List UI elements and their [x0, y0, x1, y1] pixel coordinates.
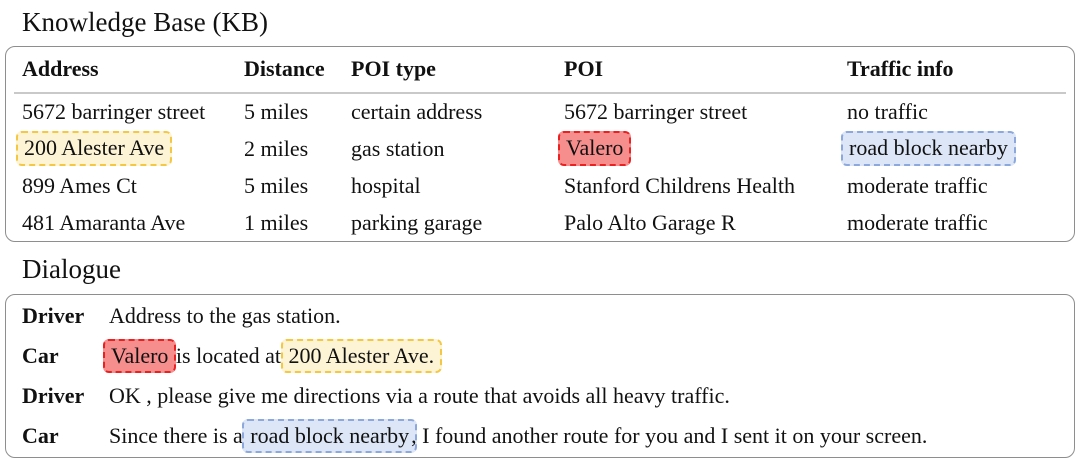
dialogue-section-title: Dialogue — [22, 252, 1080, 286]
dialogue-container: Driver Address to the gas station. Car V… — [5, 294, 1075, 458]
kb-col-header-distance: Distance — [236, 47, 343, 93]
dialogue-turn-3: Driver OK , please give me directions vi… — [6, 376, 1074, 416]
kb-row-1: 5672 barringer street 5 miles certain ad… — [14, 93, 1066, 130]
utterance: Valero is located at 200 Alester Ave. — [109, 339, 436, 373]
kb-row-4: 481 Amaranta Ave 1 miles parking garage … — [14, 204, 1066, 241]
kb-cell-traffic-highlight-blue: road block nearby — [841, 131, 1016, 165]
kb-col-header-poi: POI — [556, 47, 839, 93]
figure-page: Knowledge Base (KB) Address Distance POI… — [0, 0, 1080, 458]
utterance-segment: OK , please give me directions via a rou… — [109, 383, 730, 408]
dialogue-turn-4: Car Since there is a road block nearby, … — [6, 416, 1074, 456]
kb-cell-poi-highlight-red: Valero — [558, 131, 631, 165]
utterance-segment-highlight-red: Valero — [103, 339, 176, 373]
speaker-label: Driver — [22, 303, 109, 329]
kb-section-title: Knowledge Base (KB) — [22, 5, 1080, 39]
kb-cell-poi: 5672 barringer street — [564, 99, 747, 124]
utterance: Address to the gas station. — [109, 303, 341, 329]
utterance-segment: is located at — [170, 343, 286, 368]
kb-col-header-poi-type: POI type — [343, 47, 556, 93]
kb-header-row: Address Distance POI type POI Traffic in… — [14, 47, 1066, 93]
kb-col-header-address: Address — [14, 47, 236, 93]
kb-cell-poi: Palo Alto Garage R — [564, 210, 736, 235]
utterance-segment: Address to the gas station. — [109, 303, 341, 328]
kb-cell-traffic: no traffic — [847, 99, 928, 124]
speaker-label: Car — [22, 423, 109, 449]
utterance-segment-highlight-yellow: 200 Alester Ave. — [281, 339, 443, 373]
kb-cell-address: 899 Ames Ct — [22, 173, 137, 198]
kb-table: Address Distance POI type POI Traffic in… — [14, 47, 1066, 241]
kb-cell-distance: 1 miles — [244, 210, 308, 235]
kb-table-container: Address Distance POI type POI Traffic in… — [5, 46, 1075, 242]
utterance-segment-highlight-blue: road block nearby — [242, 419, 417, 453]
kb-cell-address-highlight-yellow: 200 Alester Ave — [16, 131, 172, 165]
kb-row-2: 200 Alester Ave 2 miles gas station Vale… — [14, 130, 1066, 167]
utterance: OK , please give me directions via a rou… — [109, 383, 730, 409]
kb-cell-distance: 5 miles — [244, 99, 308, 124]
utterance-segment: , I found another route for you and I se… — [411, 423, 927, 448]
kb-cell-address: 5672 barringer street — [22, 99, 205, 124]
speaker-label: Driver — [22, 383, 109, 409]
utterance: Since there is a road block nearby, I fo… — [109, 419, 927, 453]
dialogue-turn-1: Driver Address to the gas station. — [6, 296, 1074, 336]
utterance-segment: Since there is a — [109, 423, 248, 448]
kb-cell-poi-type: hospital — [351, 173, 421, 198]
kb-cell-distance: 5 miles — [244, 173, 308, 198]
kb-row-3: 899 Ames Ct 5 miles hospital Stanford Ch… — [14, 167, 1066, 204]
kb-cell-poi-type: parking garage — [351, 210, 482, 235]
kb-cell-poi: Stanford Childrens Health — [564, 173, 795, 198]
kb-cell-poi-type: certain address — [351, 99, 482, 124]
kb-cell-traffic: moderate traffic — [847, 210, 988, 235]
speaker-label: Car — [22, 343, 109, 369]
kb-cell-traffic: moderate traffic — [847, 173, 988, 198]
kb-cell-poi-type: gas station — [351, 136, 445, 161]
kb-cell-address: 481 Amaranta Ave — [22, 210, 185, 235]
kb-cell-distance: 2 miles — [244, 136, 308, 161]
dialogue-turn-2: Car Valero is located at 200 Alester Ave… — [6, 336, 1074, 376]
kb-col-header-traffic-info: Traffic info — [839, 47, 1066, 93]
